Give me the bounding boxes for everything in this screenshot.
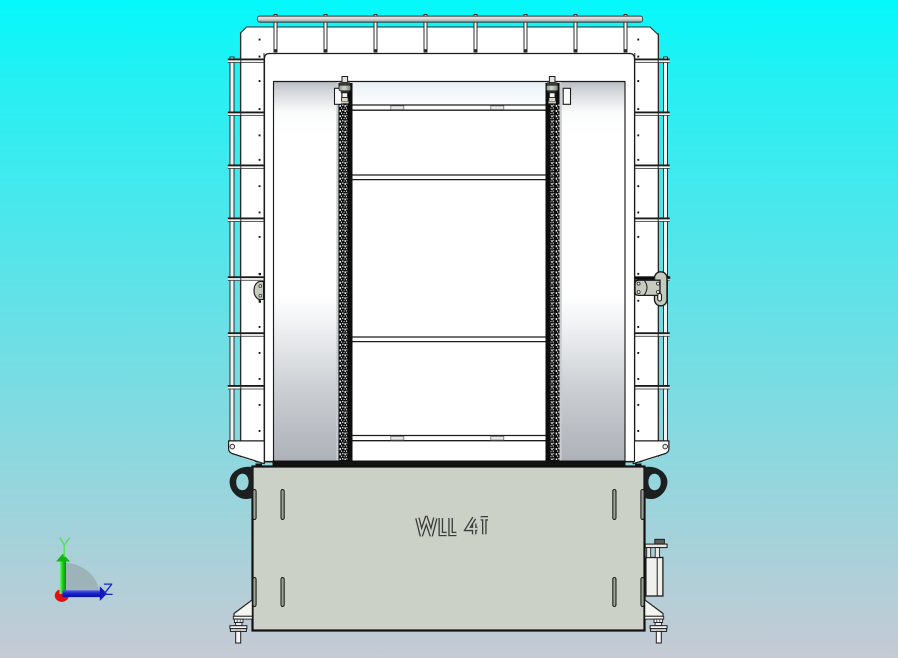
svg-text:Z: Z	[103, 580, 113, 599]
